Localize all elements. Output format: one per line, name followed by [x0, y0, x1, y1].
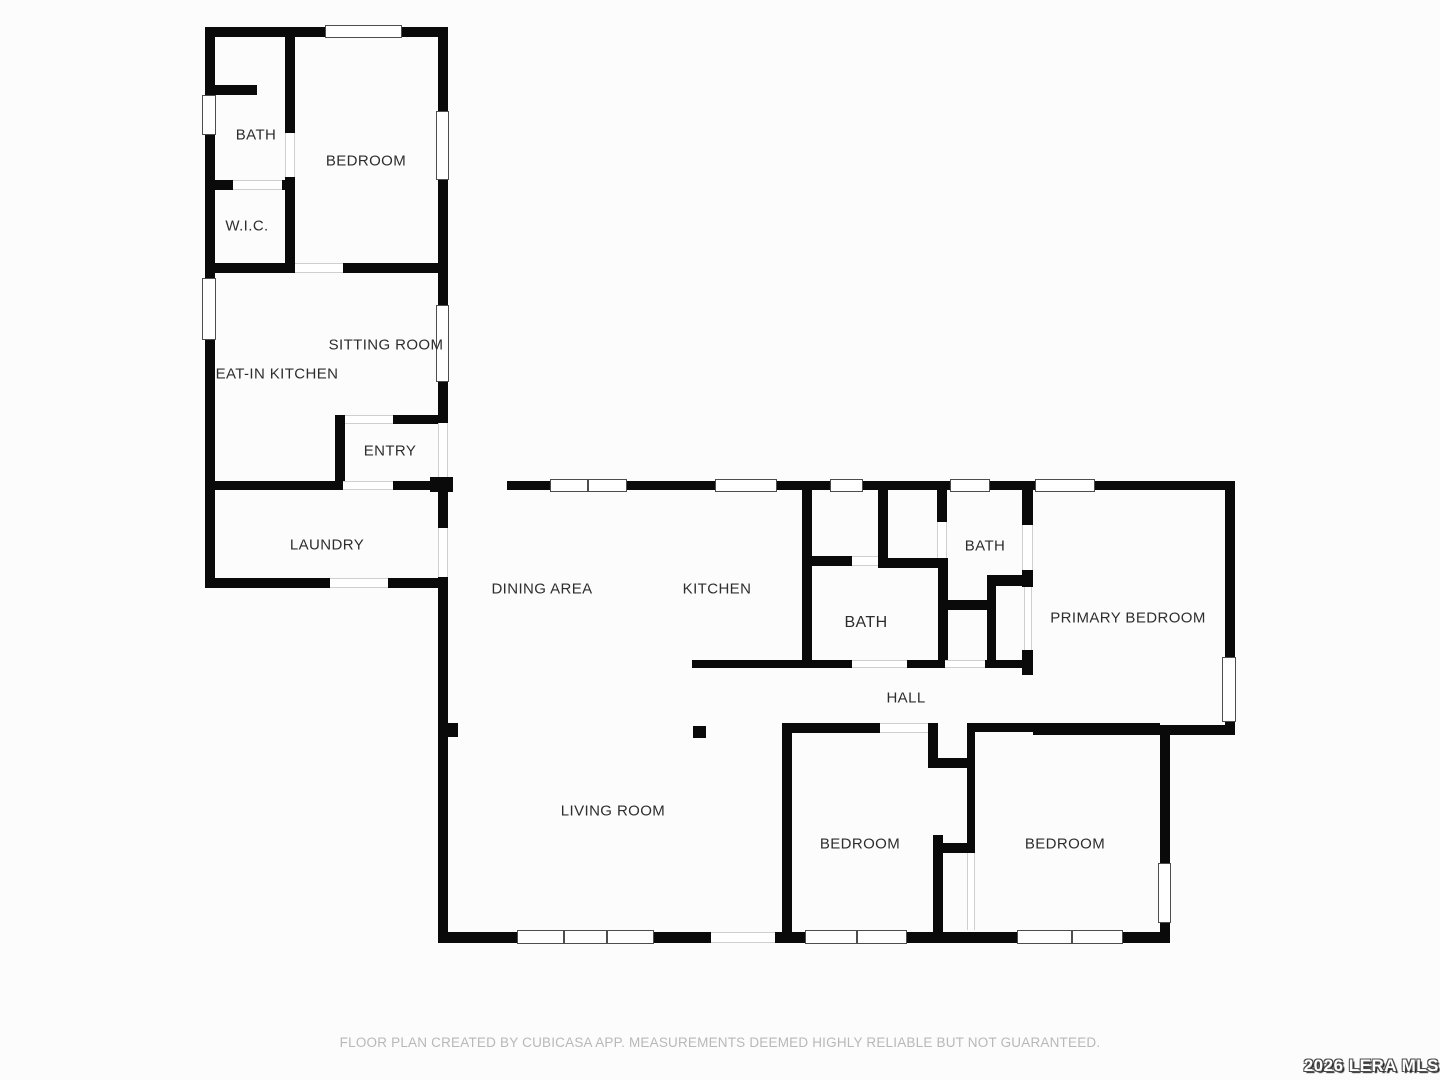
room-label-entry: ENTRY: [364, 443, 417, 460]
door-opening: [438, 528, 448, 577]
floor-plan: BATH BEDROOM W.I.C. SITTING ROOM EAT-IN …: [0, 0, 1440, 1080]
door-opening: [1024, 587, 1032, 650]
room-label-bedroom-upper: BEDROOM: [326, 153, 406, 170]
window: [715, 479, 777, 492]
wall: [205, 578, 448, 588]
wall: [943, 600, 989, 610]
room-label-bath-hall: BATH: [844, 614, 887, 632]
wall: [802, 490, 812, 662]
door-opening: [330, 578, 388, 588]
door-opening: [711, 932, 775, 943]
door-opening: [343, 481, 393, 490]
window: [436, 111, 449, 180]
wall: [1022, 481, 1033, 525]
window: [1017, 930, 1123, 944]
wall: [938, 558, 948, 663]
disclaimer-text: FLOOR PLAN CREATED BY CUBICASA APP. MEAS…: [0, 1035, 1440, 1050]
door-opening: [937, 522, 947, 558]
room-label-hall: HALL: [886, 690, 925, 707]
door-opening: [967, 853, 975, 930]
room-label-sitting-room: SITTING ROOM: [329, 337, 444, 354]
room-label-bath-upper: BATH: [236, 127, 277, 144]
wall: [812, 556, 852, 566]
wall: [335, 415, 345, 490]
window: [202, 95, 216, 135]
window: [1158, 863, 1171, 923]
door-opening: [295, 263, 343, 273]
door-opening: [880, 723, 928, 733]
room-label-dining-area: DINING AREA: [491, 581, 592, 598]
door-opening: [945, 660, 985, 668]
room-label-wic: W.I.C.: [225, 218, 268, 235]
window: [1035, 479, 1095, 492]
window: [325, 25, 402, 38]
window: [202, 278, 216, 340]
wall: [430, 477, 453, 492]
wall: [878, 490, 888, 568]
wall: [937, 490, 947, 522]
room-label-bedroom-right: BEDROOM: [1025, 836, 1105, 853]
wall: [941, 843, 967, 853]
wall: [987, 577, 996, 663]
wall: [448, 723, 458, 737]
wall: [968, 723, 1160, 732]
column: [693, 726, 706, 738]
window: [950, 479, 990, 492]
window: [805, 930, 907, 944]
wall: [967, 723, 975, 853]
window: [1222, 657, 1236, 722]
room-label-bedroom-mid: BEDROOM: [820, 836, 900, 853]
wall: [888, 558, 940, 568]
room-label-kitchen: KITCHEN: [683, 581, 752, 598]
wall: [936, 758, 967, 768]
mls-watermark: 2026 LERA MLS: [1304, 1056, 1439, 1076]
door-opening: [852, 556, 878, 566]
wall: [205, 481, 448, 490]
door-opening: [285, 133, 295, 177]
room-label-living-room: LIVING ROOM: [561, 803, 665, 820]
wall: [987, 575, 1029, 586]
room-label-eat-in-kitchen: EAT-IN KITCHEN: [216, 366, 339, 383]
window: [830, 479, 863, 492]
window: [550, 479, 627, 492]
door-opening: [233, 180, 282, 190]
door-opening: [852, 660, 907, 668]
door-opening: [345, 415, 393, 424]
door-opening: [1022, 525, 1033, 570]
room-label-bath-primary: BATH: [965, 538, 1006, 555]
room-label-laundry: LAUNDRY: [290, 537, 364, 554]
wall: [215, 85, 257, 95]
window: [517, 930, 654, 944]
door-opening: [438, 423, 448, 477]
room-label-primary-bedroom: PRIMARY BEDROOM: [1050, 610, 1205, 627]
wall: [782, 723, 880, 733]
wall: [782, 725, 792, 943]
